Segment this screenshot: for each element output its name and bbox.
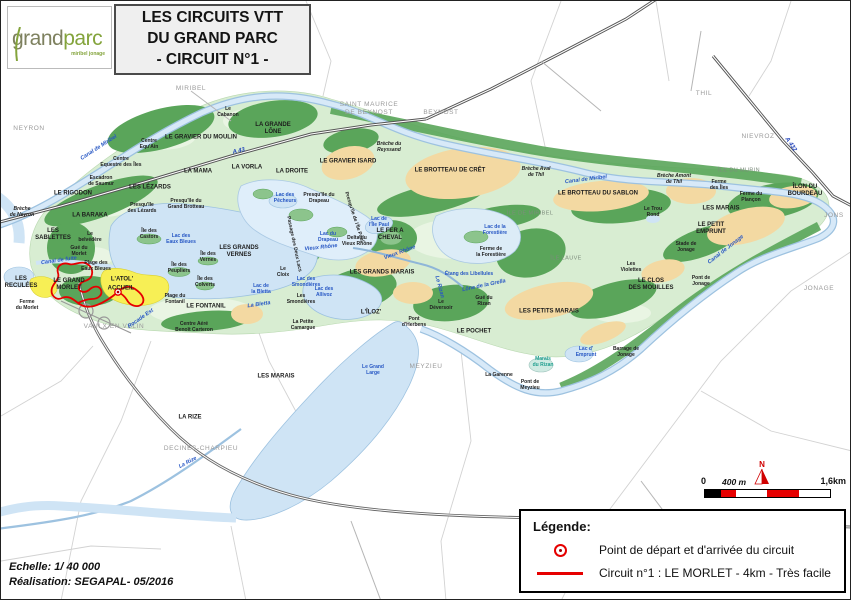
title-line-2: DU GRAND PARC — [116, 29, 309, 50]
title-line-3: - CIRCUIT N°1 - — [116, 50, 309, 71]
svg-text:N: N — [759, 460, 765, 469]
legend-title: Légende: — [533, 519, 844, 534]
scale-label-400m: 400 m — [722, 477, 746, 487]
north-arrow-icon: N — [750, 459, 774, 486]
map-credits: Echelle: 1/ 40 000 Réalisation: SEGAPAL-… — [9, 560, 173, 590]
map-title: LES CIRCUITS VTT DU GRAND PARC - CIRCUIT… — [114, 4, 311, 75]
scale-bar: N 0 400 m 1,6km — [694, 459, 846, 503]
scale-label-16km: 1,6km — [820, 476, 846, 486]
scale-bar-segments — [704, 489, 831, 498]
logo-subtitle: miribel jonage — [71, 51, 105, 57]
legend-row-start-point: Point de départ et d'arrivée du circuit — [521, 543, 844, 557]
scale-label-zero: 0 — [701, 476, 706, 486]
scale-text: Echelle: 1/ 40 000 — [9, 560, 173, 575]
title-line-1: LES CIRCUITS VTT — [116, 8, 309, 29]
realisation-text: Réalisation: SEGAPAL- 05/2016 — [9, 575, 173, 590]
logo-text-parc: parc — [63, 27, 102, 50]
grand-parc-logo: grandparc miribel jonage — [7, 6, 112, 69]
circuit-line-icon — [537, 572, 583, 575]
legend-label-start: Point de départ et d'arrivée du circuit — [599, 543, 794, 557]
leaf-icon — [13, 27, 21, 61]
legend-row-circuit: Circuit n°1 : LE MORLET - 4km - Très fac… — [521, 566, 844, 580]
legend-panel: Légende: Point de départ et d'arrivée du… — [519, 509, 846, 593]
map-canvas: {"":""} — [0, 0, 851, 600]
legend-label-circuit: Circuit n°1 : LE MORLET - 4km - Très fac… — [599, 566, 831, 580]
start-point-icon — [554, 544, 567, 557]
